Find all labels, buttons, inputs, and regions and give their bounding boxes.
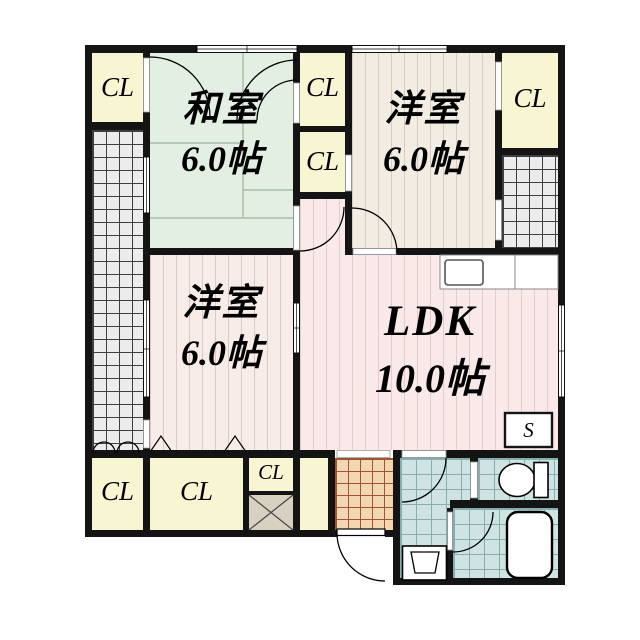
floor-plan: 和室 6.0帖 洋室 6.0帖 洋室 6.0帖 LDK 10.0帖 CL CL … xyxy=(0,0,640,640)
wall xyxy=(143,248,300,255)
closet-bottom-3-label: CL xyxy=(249,460,293,485)
western-left-name: 洋室 xyxy=(150,278,293,329)
wall xyxy=(293,45,300,537)
western-left-size: 6.0帖 xyxy=(150,329,293,379)
ldk-size: 10.0帖 xyxy=(302,351,558,406)
washitsu-size: 6.0帖 xyxy=(150,135,293,185)
closet-mid-2-label: CL xyxy=(300,146,345,177)
wall xyxy=(143,455,150,530)
balcony-left-floor xyxy=(92,130,145,455)
wall xyxy=(85,450,335,458)
wall xyxy=(328,455,335,530)
ldk-name: LDK xyxy=(302,292,558,351)
closet-top-left-label: CL xyxy=(92,72,143,103)
pipe-shaft-floor xyxy=(249,495,293,530)
washitsu-name: 和室 xyxy=(150,84,293,135)
ldk-label: LDK 10.0帖 xyxy=(302,292,558,407)
storage-box-label: S xyxy=(505,418,552,443)
closet-bottom-2-label: CL xyxy=(150,476,243,507)
closet-mid-1-label: CL xyxy=(300,72,345,103)
balcony-right-floor xyxy=(502,155,560,250)
wall xyxy=(85,45,92,537)
western-left-label: 洋室 6.0帖 xyxy=(150,278,293,379)
wall xyxy=(85,45,565,53)
wall xyxy=(345,45,352,255)
wall xyxy=(393,450,565,458)
closet-bottom-1-label: CL xyxy=(92,476,143,507)
wall xyxy=(495,148,565,155)
western-top-size: 6.0帖 xyxy=(352,135,495,185)
toilet-room-floor xyxy=(478,458,560,502)
ldk-corridor-floor xyxy=(300,199,345,255)
wall xyxy=(85,122,150,130)
wall xyxy=(293,192,352,199)
shoe-cabinet-floor xyxy=(300,458,328,530)
western-top-name: 洋室 xyxy=(352,84,495,135)
wall xyxy=(295,126,352,132)
bathroom-floor xyxy=(453,508,560,580)
entry-door-arc-icon xyxy=(337,533,385,581)
wall xyxy=(450,500,565,508)
wall xyxy=(395,578,565,585)
wall xyxy=(345,248,565,255)
genkan-floor xyxy=(335,458,395,532)
wall xyxy=(248,491,293,495)
wall xyxy=(393,455,400,585)
wall xyxy=(447,508,453,585)
closet-right-label: CL xyxy=(502,83,558,114)
genkan-step xyxy=(337,451,390,458)
washitsu-label: 和室 6.0帖 xyxy=(150,84,293,185)
western-top-label: 洋室 6.0帖 xyxy=(352,84,495,185)
wall xyxy=(470,455,478,505)
